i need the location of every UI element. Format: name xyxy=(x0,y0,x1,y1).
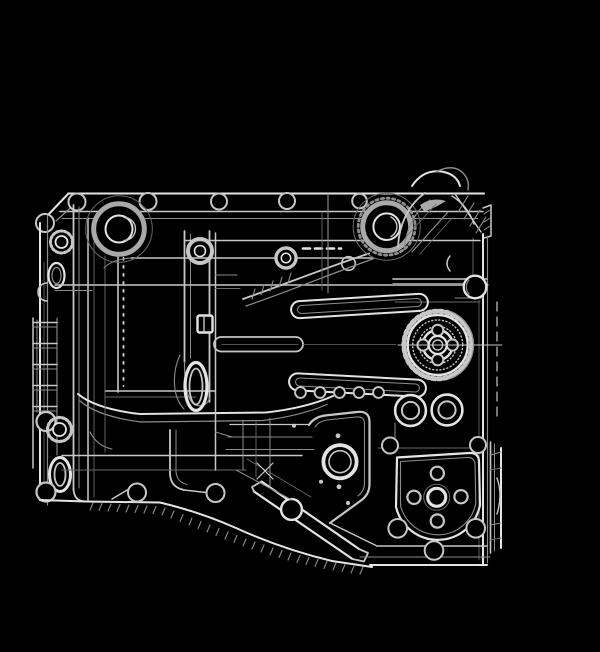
pin-dot xyxy=(346,501,350,505)
wire-circle xyxy=(56,236,68,248)
wire-ticks xyxy=(484,210,490,230)
wire-path xyxy=(90,432,112,449)
horn-fill xyxy=(420,199,446,211)
bolt-hole xyxy=(373,387,384,398)
rib-hole xyxy=(281,499,302,520)
wire-line xyxy=(420,218,452,254)
bolt-hole xyxy=(211,194,227,210)
wire-line xyxy=(491,452,502,455)
pin-dot xyxy=(337,484,342,489)
rail-end-boss xyxy=(464,276,487,299)
bolt-hole xyxy=(466,519,485,538)
bolt-hole xyxy=(470,437,486,453)
wire-path xyxy=(176,470,187,485)
bolt-hole xyxy=(279,193,295,209)
right-boss xyxy=(363,203,411,251)
bolt-hole xyxy=(207,484,225,502)
bolt-hole xyxy=(382,438,398,454)
pad-bolt-hole xyxy=(431,514,444,527)
pad-center-hole xyxy=(428,488,446,506)
pad-bolt-hole xyxy=(431,467,444,480)
oval-boss xyxy=(185,363,207,411)
wire-circle xyxy=(53,423,66,436)
oval-port xyxy=(49,263,65,288)
diagonal-rib xyxy=(254,492,353,560)
hub-hole xyxy=(432,354,443,365)
wire-path xyxy=(74,488,87,502)
ring-boss xyxy=(276,248,296,268)
wire-path xyxy=(174,355,184,409)
bolt-hole xyxy=(425,541,444,560)
pin-dot xyxy=(292,424,296,428)
left-boss xyxy=(94,204,145,255)
wire-line xyxy=(491,538,502,540)
vent-ring xyxy=(432,395,463,426)
bolt-hole xyxy=(128,484,146,502)
bolt-hole xyxy=(354,387,365,398)
bolt-hole xyxy=(334,387,345,398)
wire-line xyxy=(247,459,311,497)
ring-boss xyxy=(188,239,212,263)
pad-bolt-hole xyxy=(454,490,467,503)
wire-ellipse xyxy=(55,463,66,486)
screenshot-root: { "canvas": { "width": 600, "height": 65… xyxy=(0,0,600,652)
wire-line xyxy=(216,432,233,437)
wire-path xyxy=(452,196,474,224)
pin-dot xyxy=(336,433,341,438)
pin-dot xyxy=(319,480,323,484)
bolt-hole xyxy=(36,214,54,232)
wire-path xyxy=(447,256,450,271)
side-slot-upper xyxy=(291,293,429,318)
bolt-hole xyxy=(37,483,56,502)
wire-line xyxy=(184,490,206,493)
wireframe-drawing xyxy=(0,0,600,652)
wire-ellipse xyxy=(52,268,61,284)
horn-curve xyxy=(412,171,460,186)
wire-line xyxy=(491,523,502,525)
wire-path xyxy=(497,478,500,514)
corner-hatch xyxy=(458,196,486,233)
wire-ellipse xyxy=(190,369,203,405)
rib-endcap xyxy=(353,549,369,562)
cad-viewport xyxy=(0,0,600,652)
wire-path xyxy=(246,259,374,307)
bolt-hole xyxy=(388,519,407,538)
wire-line xyxy=(491,468,502,470)
hub-hole xyxy=(432,325,443,336)
bolt-hole xyxy=(315,387,326,398)
clamp-bracket xyxy=(198,316,213,333)
wire-line xyxy=(236,470,292,500)
pipe-ticks xyxy=(252,273,291,299)
vent-ring xyxy=(395,395,426,426)
pad-bolt-hole xyxy=(407,491,420,504)
bolt-hole xyxy=(140,193,157,210)
bolt-hole xyxy=(295,387,306,398)
bolt-hole xyxy=(69,194,86,211)
